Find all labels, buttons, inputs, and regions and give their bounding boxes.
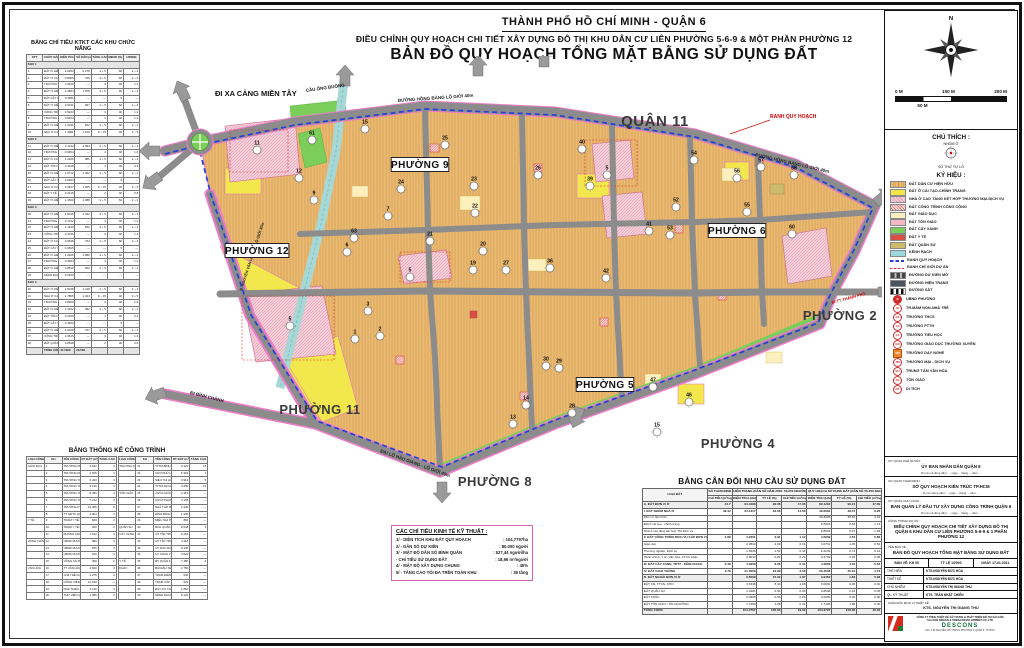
svg-text:20: 20 <box>480 242 486 248</box>
ubnd-icon: ★ <box>893 295 902 304</box>
table-row: 7TRƯỜNG PTTH MẠC ĐĨNH CHI12.4055 <box>27 504 117 511</box>
table-row: 37CÔNG TRÌNH CÔNG CỘNG0.3515—3401.2 <box>27 334 140 341</box>
economic-indicators-box: CÁC CHỈ TIÊU KINH TẾ KỸ THUẬT : 1/ - DIỆ… <box>391 525 533 581</box>
svg-text:23: 23 <box>471 177 477 183</box>
table-row: 16ĐẤT CÂY XANH0.6204——5— <box>27 177 140 184</box>
table-row: CÂY XANH31CX TẬP TRUNG KHU 16.204— <box>118 531 208 538</box>
column-header: TÊN CÔNG TRÌNH <box>62 457 80 464</box>
svg-text:21: 21 <box>427 232 433 238</box>
svg-text:41: 41 <box>646 222 652 228</box>
table-row: 25ĐẤT CÂY XANH0.3815——5— <box>27 245 140 252</box>
table-row: 17CLB THỂ DỤC THỂ THAO3.2752 <box>27 572 117 579</box>
svg-text:15: 15 <box>654 423 660 429</box>
title-block-sections: CƠ QUAN PHÊ DUYỆT :ỦY BAN NHÂN DÂN QUẬN … <box>885 457 1017 559</box>
credit-row: THIẾT KẾKTS.NGUYỄN ĐỨC HÒA <box>885 576 1017 584</box>
legend-item: NHÀ Ở CAO TẦNG KẾT HỢP THƯƠNG MẠI-DỊCH V… <box>890 196 1012 204</box>
legend-item: RANH QUY HOẠCH <box>890 257 1012 265</box>
primary-school-icon: C1 <box>893 331 902 340</box>
legend-item: ★UBND PHƯỜNG <box>890 295 1012 304</box>
table-row: 37TRẠM ĐIỆN PHÚ LÂM640— <box>118 572 208 579</box>
svg-text:27: 27 <box>503 261 509 267</box>
svg-text:12: 12 <box>296 169 302 175</box>
title-block-section: CƠ QUAN CHỦ QUẢN :BAN QUẢN LÝ ĐẦU TƯ XÂY… <box>885 497 1017 517</box>
ward-label: PHƯỜNG 12 <box>225 244 289 257</box>
table-row: 18CÔNG VIÊN PHÚ LÂM12.640— <box>27 579 117 586</box>
table-row: 3TRƯỜNG TH PHÚ LÂM6.2404 <box>27 477 117 484</box>
svg-text:5: 5 <box>289 317 292 323</box>
balance-row: II. ĐẤT CÔNG TRÌNH DỊCH VỤ CẤP ĐƠN VỊ Ở0… <box>643 535 882 542</box>
table-row: 38TRẠM CẤP NƯỚC520— <box>118 579 208 586</box>
culture-center-icon: VH <box>893 367 902 376</box>
economics-items: 1/ - DIỆN TÍCH KHU ĐẤT QUY HOẠCH: 104,77… <box>396 537 528 576</box>
column-header: TẦNG CAO <box>98 457 116 464</box>
table-row: 7CÔNG TRÌNH CÔNG CỘNG0.5223—3401.2 <box>27 109 140 116</box>
table-row: 32TRƯỜNG THCS0.8460—4401.6 <box>27 300 140 307</box>
legend-swatch-icon <box>890 268 904 269</box>
balance-row: ĐẤT TÔN GIÁO / TÍN NGƯỠNG1.74891.080.311… <box>643 601 882 608</box>
svg-text:56: 56 <box>734 169 740 175</box>
legend-item-label: TR.MẦM NON-NHÀ TRẺ <box>906 306 949 310</box>
military-parcel <box>770 184 784 194</box>
legend-item: ĐƯỜNG DỰ KIẾN MỞ <box>890 272 1012 280</box>
svg-text:24: 24 <box>398 180 404 186</box>
legend-item: ĐẤT TÔN GIÁO <box>890 219 1012 227</box>
title-block: CƠ QUAN PHÊ DUYỆT :ỦY BAN NHÂN DÂN QUẬN … <box>885 457 1017 641</box>
table-row: 33CX DỌC RẠCH ÔNG BUÔNG9.340— <box>118 545 208 552</box>
boundary-label-leader <box>730 120 770 134</box>
table-row: 12TRƯỜNG THCS0.9354—4401.6 <box>27 150 140 157</box>
table-row: 4ĐẤT Ở HIỆN HỮU2.48641.8782 ÷ 5602 ÷ 4 <box>27 89 140 96</box>
legend-item-label: ĐẤT CÂY XANH <box>909 228 938 232</box>
table-row: 27TRƯỜNG MẦM NON0.2904—3401.2 <box>27 259 140 266</box>
zoning-map: ĐI XA CẢNG MIỀN TÂYCẦU ỐNG BUÔNGĐƯỜNG HỒ… <box>130 56 882 526</box>
legend-item-label: ĐẤT TÔN GIÁO <box>909 221 937 225</box>
legend-item-label: TRƯỜNG TIỂU HỌC <box>906 333 942 337</box>
ktkt-panel: BẢNG CHỈ TIÊU KTKT CÁC KHU CHỨC NĂNG STT… <box>26 40 140 355</box>
column-header: MĐXD (%) <box>107 55 123 62</box>
balance-row: ĐẤT QUÂN SỰ1.04810.910.060.85480.180.05 <box>643 588 882 595</box>
legend-item: ĐẤT CÂY XANH <box>890 227 1012 235</box>
svg-text:55: 55 <box>744 203 750 209</box>
lot-number-label: SỐ THỨ TỰ LÔ <box>890 165 1012 169</box>
table-row: 26ĐẤT Ở HIỆN HỮU2.24061.6802 ÷ 5602 ÷ 4 <box>27 252 140 259</box>
balance-row: ĐẤT CN, TTCN, KHO3.53388.401.080.00000.0… <box>643 581 882 588</box>
table-row: GIÁO DỤC1TRƯỜNG MN PHƯỜNG 53.6423 <box>27 463 117 470</box>
lot-marker-icon <box>944 146 958 160</box>
svg-text:13: 13 <box>510 415 516 421</box>
ward-label: PHƯỜNG 11 <box>279 402 360 417</box>
svg-text:46: 46 <box>686 393 692 399</box>
table-row: 19NHÀ THIẾU NHI2.1463 <box>27 586 117 593</box>
legend-swatch-icon <box>890 250 906 257</box>
scale-bar: 0 M 100 M 200 M 50 M <box>895 89 1007 108</box>
table-row: 22ĐẤT Ở HIỆN HỮU1.12408422 ÷ 5602 ÷ 4 <box>27 225 140 232</box>
svg-text:28: 28 <box>569 404 575 410</box>
legend-item: C2TRƯỜNG THCS <box>890 313 1012 322</box>
legend-item-label: ĐẤT CÔNG TRÌNH CÔNG CỘNG <box>909 206 967 210</box>
table-row: Y TẾ9TRẠM Y TẾ PHƯỜNG 58202 <box>27 518 117 525</box>
svg-text:36: 36 <box>547 259 553 265</box>
table-row: HÀNH CHÍNH12UBND PHƯỜNG 59803 <box>27 538 117 545</box>
road-label: RANH QUY HOẠCH <box>770 114 817 120</box>
svg-text:54: 54 <box>691 151 697 157</box>
ktkt-table-body: KHU 11ĐẤT Ở HIỆN HỮU3.02532.2782 ÷ 5602 … <box>27 61 140 354</box>
legend-item: GDTRƯỜNG GIÁO DỤC THƯỜNG XUYÊN <box>890 340 1012 349</box>
table-row: 35ĐẤT CÂY XANH0.4452——5— <box>27 320 140 327</box>
ktkt-header-row: STTCHỨC NĂNGDIỆN TÍCH (ha)SỐ DÂN (người)… <box>27 55 140 62</box>
legend-item: RANH CHỈ GIỚI DỰ ÁN <box>890 265 1012 273</box>
table-row: 34ĐẤT TÔN GIÁO0.2206—1300.3 <box>27 313 140 320</box>
table-row: 15ĐẤT Ở HIỆN HỮU1.87101.4022 ÷ 5602 ÷ 4 <box>27 170 140 177</box>
legend-item-label: THƯƠNG MẠI - DỊCH VỤ <box>906 360 950 364</box>
balance-row: IV. ĐẤT GIAO THÔNG3.7821.050619.993.0826… <box>643 568 882 575</box>
legend-item-label: RANH CHỈ GIỚI DỰ ÁN <box>907 266 948 270</box>
table-row: 10TRẠM Y TẾ PHƯỜNG 66402 <box>27 525 117 532</box>
svg-text:14: 14 <box>523 396 529 402</box>
table-row: 39ĐẤT DỰ TRỮ1.860— <box>118 586 208 593</box>
svg-text:26: 26 <box>535 166 541 172</box>
legend-item: TGTÔN GIÁO <box>890 376 1012 385</box>
ward-label: PHƯỜNG 2 <box>803 308 877 323</box>
table-row: 34CX CÁCH LY ĐƯỜNG SẮT3.620— <box>118 552 208 559</box>
legend-item-label: DI TÍCH <box>906 387 920 391</box>
legend-swatch-icon <box>890 260 904 262</box>
legend-item-label: ĐƯỜNG DỰ KIẾN MỞ <box>909 274 948 278</box>
ward-label: PHƯỜNG 8 <box>458 474 532 489</box>
legend-item: ĐƯỜNG HIỆN TRẠNG <box>890 280 1012 288</box>
column-header: LOẠI CÔNG TRÌNH <box>27 457 45 464</box>
table-row: 11ĐẤT Ở HIỆN HỮU2.11321.5942 ÷ 5602 ÷ 4 <box>27 143 140 150</box>
table-row: 6ĐẤT Ở HIỆN HỮU0.92416972 ÷ 5602 ÷ 4 <box>27 102 140 109</box>
table-row: 31NHÀ Ở CAO TẦNG KẾT HỢP TM-DV1.78051.42… <box>27 293 140 300</box>
table-row: 40KÊNH RẠCH8.120— <box>118 593 208 600</box>
legend-item: DTDI TÍCH <box>890 385 1012 394</box>
continuing-education-icon: GD <box>893 340 902 349</box>
table-row: 21TRƯỜNG TIỂU HỌC0.7212—3401.2 <box>27 218 140 225</box>
legend-swatch-icon <box>890 234 906 241</box>
legend-swatch-icon <box>890 189 906 196</box>
health-parcel <box>470 311 477 318</box>
column-header: CHỨC NĂNG <box>43 55 59 62</box>
legend-swatch-icon <box>890 196 906 203</box>
table-row: 5TRƯỜNG THCS PHẠM ĐÌNH HỔ8.4564 <box>27 491 117 498</box>
economics-title: CÁC CHỈ TIÊU KINH TẾ KỸ THUẬT : <box>396 529 528 535</box>
legend-point-list: ★UBND PHƯỜNGMTR.MẦM NON-NHÀ TRẺC2TRƯỜNG … <box>890 295 1012 394</box>
legend-item-label: ĐẤT Y TẾ <box>909 236 926 240</box>
balance-row: Nhà ở cao tầng kết hợp TM-Dịch vụ8.85028… <box>643 528 882 535</box>
director-name: KTS. NGUYỄN THỊ GIANG THU <box>888 606 1014 610</box>
descons-logo-icon <box>888 616 903 631</box>
balance-row: Hành chính, Y tế, Văn hóa, CTCC khác0.80… <box>643 555 882 562</box>
svg-text:42: 42 <box>603 269 609 275</box>
ktkt-group-row: KHU 3 <box>27 204 140 211</box>
legend-item-label: TÔN GIÁO <box>906 378 925 382</box>
svg-text:52: 52 <box>673 198 679 204</box>
legend-item-label: ĐƯỜNG HIỆN TRẠNG <box>909 282 949 286</box>
table-row: 15CÔNG AN PHƯỜNG 54602 <box>27 559 117 566</box>
table-row: 13ĐẤT Ở CẢI TẠO CHỈNH TRANG1.24569862 ÷ … <box>27 157 140 164</box>
svg-text:7: 7 <box>387 207 390 213</box>
legend-item: VHTRUNG TÂM VĂN HÓA <box>890 367 1012 376</box>
ward-label: PHƯỜNG 5 <box>576 378 634 391</box>
balance-row: Thương nghiệp, Dịch vụ1.65361.520.442.22… <box>643 548 882 555</box>
table-row: 38ĐẤT QUÂN SỰ0.8548—2300.6 <box>27 341 140 348</box>
svg-text:1: 1 <box>354 330 357 336</box>
table-row: 2TRƯỜNG MN RẠNG ĐÔNG2.8153 <box>27 470 117 477</box>
legend-item: ĐẤT CÔNG TRÌNH CÔNG CỘNG <box>890 204 1012 212</box>
table-row: 9ĐẤT Ở HIỆN HỮU1.02118122 ÷ 5602 ÷ 4 <box>27 123 140 130</box>
vocational-school-icon: DN <box>893 349 902 358</box>
table-row: 18ĐẤT Y TẾ0.2415—2400.8 <box>27 191 140 198</box>
table-row: 6TRƯỜNG THCS NGUYỄN ĐỨC CẢNH7.2124 <box>27 497 117 504</box>
balance-row: Giáo dục2.05342.090.313.07311.450.52 <box>643 542 882 549</box>
legend-item: C3TRƯỜNG PTTH <box>890 322 1012 331</box>
legend-item: KÊNH RẠCH <box>890 249 1012 257</box>
column-header: DT ĐẤT (m²) <box>80 457 98 464</box>
svg-text:15: 15 <box>362 120 368 126</box>
svg-text:61: 61 <box>309 131 315 137</box>
legend-item: C1TRƯỜNG TIỂU HỌC <box>890 331 1012 340</box>
legend-item-label: RANH QUY HOẠCH <box>907 259 942 263</box>
column-header: STT <box>27 55 43 62</box>
balance-row: TỔNG CỘNG104.2797100.0019.62104.2797100.… <box>643 608 882 615</box>
legend-item: ĐẤT GIÁO DỤC <box>890 211 1012 219</box>
legend-item: MTR.MẦM NON-NHÀ TRẺ <box>890 304 1012 313</box>
credit-row: QL. KỸ THUẬTKTS. TRẦN NHẬT CHIẾN <box>885 591 1017 599</box>
credits-rows: THỂ HIỆNKTS.NGUYỄN ĐỨC HÒATHIẾT KẾKTS.NG… <box>885 568 1017 599</box>
legend-title: KÝ HIỆU : <box>890 172 1012 179</box>
ktkt-title: BẢNG CHỈ TIÊU KTKT CÁC KHU CHỨC NĂNG <box>26 40 140 52</box>
road-label: ĐI XA CẢNG MIỀN TÂY <box>215 88 297 98</box>
legend-item: DNTRƯỜNG DẠY NGHỀ <box>890 349 1012 358</box>
svg-text:5: 5 <box>409 268 412 274</box>
legend-item: ĐẤT Y TẾ <box>890 234 1012 242</box>
legend-swatch-icon <box>890 242 906 249</box>
ktkt-table: STTCHỨC NĂNGDIỆN TÍCH (ha)SỐ DÂN (người)… <box>26 54 140 355</box>
table-row: 14ĐẤT TÔN GIÁO0.3108—1300.3 <box>27 164 140 171</box>
ktkt-group-row: KHU 4 <box>27 279 140 286</box>
table-row: 14UBND PHƯỜNG 99103 <box>27 552 117 559</box>
table-row: 20ĐẤT Ở HIỆN HỮU1.91051.4322 ÷ 5602 ÷ 4 <box>27 211 140 218</box>
table-row: 11PHÒNG KHÁM ĐA KHOA1.5124 <box>27 531 117 538</box>
legend-item-label: KÊNH RẠCH <box>909 251 932 255</box>
balance-row: III. ĐẤT CÂY XANH, TDTT - KÊNH RẠCH0.484… <box>643 562 882 569</box>
header-city-line: THÀNH PHỐ HỒ CHÍ MINH - QUẬN 6 <box>502 16 706 32</box>
scale-tick-50: 50 M <box>917 103 1007 108</box>
title-block-section: CƠ QUAN PHÊ DUYỆT :ỦY BAN NHÂN DÂN QUẬN … <box>885 457 1017 477</box>
ward-label: PHƯỜNG 4 <box>701 436 776 451</box>
highschool-icon: C3 <box>893 322 902 331</box>
drawing-number: BẢN VẼ: KH 09 <box>885 559 929 567</box>
legend-section: CHÚ THÍCH : NHÓM Ở SỐ THỨ TỰ LÔ KÝ HIỆU … <box>885 130 1017 457</box>
table-row: KHÁC36BÃI ĐẬU XE KHU 32.750— <box>118 566 208 573</box>
table-row: 8TT GDTX QUẬN 62.9043 <box>27 511 117 518</box>
director-block: GIÁM ĐỐC ĐƠN VỊ THIẾT KẾ : KTS. NGUYỄN T… <box>885 599 1017 614</box>
legend-swatch-icon <box>890 227 906 234</box>
credit-row: THỂ HIỆNKTS.NGUYỄN ĐỨC HÒA <box>885 568 1017 576</box>
svg-text:53: 53 <box>667 226 673 232</box>
economic-indicator-row: 5/ - TẦNG CAO TỐI ĐA TRÊN TOÀN KHU: 35 t… <box>396 570 528 577</box>
compass-section: N 0 M 100 M 200 M 50 M <box>885 11 1017 130</box>
svg-text:22: 22 <box>472 204 478 210</box>
legend-item-label: TRƯỜNG DẠY NGHỀ <box>906 351 944 355</box>
stats-header-row: LOẠI CÔNG TRÌNHKHTÊN CÔNG TRÌNHDT ĐẤT (m… <box>27 457 117 464</box>
north-letter: N <box>949 16 953 22</box>
legend-item: ĐẤT DÂN CƯ HIỆN HỮU <box>890 181 1012 189</box>
legend-swatch-icon <box>890 280 906 287</box>
roundabout-icon <box>187 129 213 155</box>
svg-text:58: 58 <box>791 166 797 172</box>
table-row: 2ĐẤT Ở CẢI TẠO CHỈNH TRANG0.80567092 ÷ 5… <box>27 75 140 82</box>
compass-rose-icon: N <box>916 13 986 90</box>
drawing-info-row: BẢN VẼ: KH 09 TỶ LỆ 1/2000 NGÀY 17-01-20… <box>885 559 1017 568</box>
company-block: CÔNG TY TNHH THIẾT KẾ XÂY DỰNG & PHÁT TR… <box>885 614 1017 634</box>
svg-text:39: 39 <box>587 177 593 183</box>
title-block-section: CƠ QUAN THẨM ĐỊNH :SỞ QUY HOẠCH KIẾN TRÚ… <box>885 477 1017 497</box>
table-row: 32CX TẬP TRUNG KHU 24.118— <box>118 538 208 545</box>
table-row: 3TRƯỜNG MẦM NON0.3420—3401.2 <box>27 82 140 89</box>
table-row: 33ĐẤT Ở HIỆN HỮU1.31029822 ÷ 5602 ÷ 4 <box>27 307 140 314</box>
column-header: DIỆN TÍCH (ha) <box>59 55 75 62</box>
table-row: 10NHÀ Ở CAO TẦNG KẾT HỢP TM-DV1.39811.10… <box>27 129 140 136</box>
svg-text:47: 47 <box>650 378 656 384</box>
scale-bar-rule <box>895 96 1007 102</box>
legend-item-label: ĐƯỜNG SẮT <box>909 289 932 293</box>
table-row: 23CÔNG TRÌNH CÔNG CỘNG0.4136—3401.2 <box>27 232 140 239</box>
table-row: 28ĐẤT Ở HIỆN HỮU0.88126622 ÷ 5602 ÷ 4 <box>27 266 140 273</box>
ktkt-group-row: KHU 1 <box>27 61 140 68</box>
scale-tick-0: 0 M <box>895 89 903 94</box>
table-row: 19ĐẤT Ở HIỆN HỮU1.45201.0882 ÷ 5602 ÷ 4 <box>27 198 140 205</box>
legend-item: ĐẤT Ở CẢI TẠO-CHỈNH TRANG <box>890 189 1012 197</box>
ktkt-total-row: TỔNG CỘNG44.709323.562 <box>27 347 140 354</box>
stats-table-left: LOẠI CÔNG TRÌNHKHTÊN CÔNG TRÌNHDT ĐẤT (m… <box>26 456 117 600</box>
right-panel: N 0 M 100 M 200 M 50 M CHÚ THÍCH : <box>884 10 1018 642</box>
ward-label: PHƯỜNG 6 <box>708 224 766 237</box>
title-block-section: TÊN BẢN VẼ :BẢN ĐỒ QUY HOẠCH TỔNG MẶT BẰ… <box>885 543 1017 559</box>
table-row: 13UBND PHƯỜNG 68753 <box>27 545 117 552</box>
table-row: 17NHÀ Ở CAO TẦNG KẾT HỢP TM-DV2.08171.66… <box>27 184 140 191</box>
legend-item-label: ĐẤT DÂN CƯ HIỆN HỮU <box>909 183 953 187</box>
svg-text:25: 25 <box>442 136 448 142</box>
table-row: 20THƯ VIỆN QUẬN1.0853 <box>27 593 117 600</box>
svg-text:2: 2 <box>379 327 382 333</box>
legend-item-label: NHÀ Ở CAO TẦNG KẾT HỢP THƯƠNG MẠI-DỊCH V… <box>909 198 1004 202</box>
table-row: 36ĐẤT Ở HIỆN HỮU1.02287672 ÷ 5602 ÷ 4 <box>27 327 140 334</box>
svg-text:30: 30 <box>543 357 549 363</box>
column-header: TẦNG CAO <box>91 55 107 62</box>
secondary-school-icon: C2 <box>893 313 902 322</box>
scale-tick-100: 100 M <box>942 89 955 94</box>
company-address: Đ/C: 146 NGUYỄN CHÍ THANH, PHƯỜNG 3, QUẬ… <box>906 629 1014 632</box>
legend-item-label: TRUNG TÂM VĂN HÓA <box>906 369 947 373</box>
svg-text:40: 40 <box>579 140 585 146</box>
table-row: 29KÊNH RẠCH0.5320———— <box>27 273 140 280</box>
legend-item-label: TRƯỜNG PTTH <box>906 324 934 328</box>
legend-swatch-icon <box>890 212 906 219</box>
table-row: VĂN HÓA16TT VĂN HÓA QUẬN 64.8103 <box>27 566 117 573</box>
legend-swatch-icon <box>890 219 906 226</box>
legend-swatch-icon <box>890 204 906 211</box>
svg-text:9: 9 <box>313 191 316 197</box>
heritage-icon: DT <box>893 385 902 394</box>
table-row: 5ĐẤT CÂY XANH0.4581——5— <box>27 95 140 102</box>
stats-table-body: GIÁO DỤC1TRƯỜNG MN PHƯỜNG 53.64232TRƯỜNG… <box>27 463 117 599</box>
scale-tick-200: 200 M <box>994 89 1007 94</box>
religion-icon: TG <box>893 376 902 385</box>
svg-text:57: 57 <box>758 158 764 164</box>
svg-text:5: 5 <box>606 166 609 172</box>
ktkt-group-row: KHU 2 <box>27 136 140 143</box>
legend-item: ĐƯỜNG SẮT <box>890 287 1012 295</box>
legend-item: TMTHƯƠNG MẠI - DỊCH VỤ <box>890 358 1012 367</box>
svg-text:11: 11 <box>254 141 260 147</box>
svg-text:3: 3 <box>367 302 370 308</box>
table-row: 24ĐẤT Ở CẢI TẠO CHỈNH TRANG0.96487642 ÷ … <box>27 238 140 245</box>
legend-item-label: TRƯỜNG THCS <box>906 315 935 319</box>
legend-swatch-list: ĐẤT DÂN CƯ HIỆN HỮUĐẤT Ở CẢI TẠO-CHỈNH T… <box>890 181 1012 295</box>
svg-text:6: 6 <box>346 243 349 249</box>
lot-marker-icon: 15 <box>651 423 663 439</box>
plan-sheet: THÀNH PHỐ HỒ CHÍ MINH - QUẬN 6 ĐIỀU CHỈN… <box>0 0 1024 648</box>
svg-text:19: 19 <box>470 261 476 267</box>
legend-item-label: ĐẤT Ở CẢI TẠO-CHỈNH TRANG <box>909 190 966 194</box>
legend-swatch-icon <box>890 181 906 188</box>
legend-item: ĐẤT QUÂN SỰ <box>890 242 1012 250</box>
table-row: 30ĐẤT Ở HIỆN HỮU1.62481.2182 ÷ 5602 ÷ 4 <box>27 286 140 293</box>
table-row: 8TRƯỜNG TIỂU HỌC0.8164—3401.2 <box>27 116 140 123</box>
legend-swatch-icon <box>890 272 906 279</box>
table-row: 4TRƯỜNG TH BÌNH TIÊN5.1304 <box>27 484 117 491</box>
table-row: Y TẾ35BV QUẬN 6 (MỞ RỘNG)7.4806 <box>118 559 208 566</box>
legend-item-label: ĐẤT GIÁO DỤC <box>909 213 937 217</box>
notes-title: CHÚ THÍCH : <box>890 134 1012 141</box>
drawing-scale: TỶ LỆ 1/2000 <box>929 559 973 567</box>
balance-row: B. ĐẤT NGOÀI ĐƠN VỊ Ở9.850915.321.973.94… <box>643 575 882 582</box>
column-header: SỐ DÂN (người) <box>75 55 91 62</box>
commerce-icon: TM <box>893 358 902 367</box>
svg-text:60: 60 <box>789 225 795 231</box>
ward-label: PHƯỜNG 9 <box>391 158 449 171</box>
legend-item-label: UBND PHƯỜNG <box>906 297 935 301</box>
svg-text:29: 29 <box>556 359 562 365</box>
drawing-date: NGÀY 17-01-2011 <box>974 559 1017 567</box>
svg-text:63: 63 <box>351 229 357 235</box>
title-block-section: CÔNG TRÌNH/ DỰ ÁN :ĐIỀU CHỈNH QUY HOẠCH … <box>885 517 1017 543</box>
table-row: 1ĐẤT Ở HIỆN HỮU3.02532.2782 ÷ 5602 ÷ 4 <box>27 68 140 75</box>
legend-swatch-icon <box>890 288 906 295</box>
kindergarten-icon: M <box>893 304 902 313</box>
balance-row: ĐẤT KHÁC0.09080.940.030.00000.000.00 <box>643 595 882 602</box>
credit-row: CHỦ NHIỆMKTS.NGUYỄN THỊ GIANG THU <box>885 584 1017 592</box>
ward-label: QUẬN 11 <box>621 112 689 130</box>
legend-item-label: TRƯỜNG GIÁO DỤC THƯỜNG XUYÊN <box>906 342 976 346</box>
column-header: KH <box>44 457 62 464</box>
director-label: GIÁM ĐỐC ĐƠN VỊ THIẾT KẾ : <box>888 601 1014 605</box>
legend-item-label: ĐẤT QUÂN SỰ <box>909 244 936 248</box>
header-project-line: ĐIỀU CHỈNH QUY HOẠCH CHI TIẾT XÂY DỰNG Đ… <box>330 34 878 45</box>
